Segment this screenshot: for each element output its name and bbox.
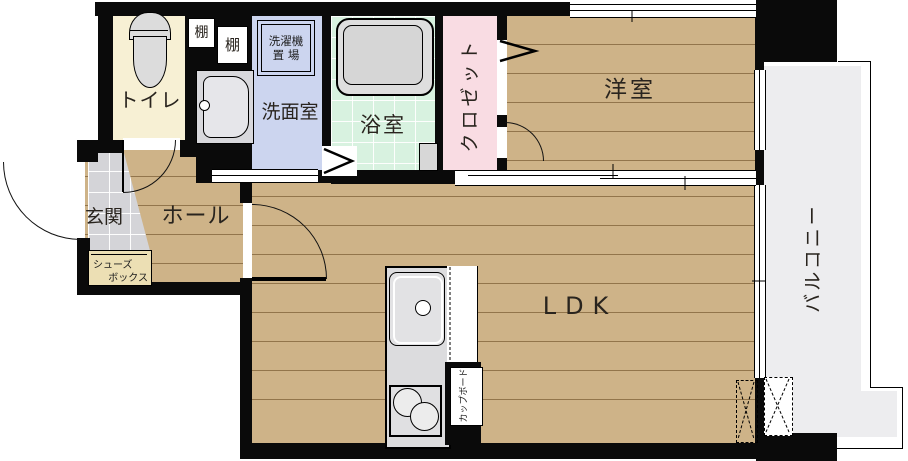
shoes-box-label-line2: ボックス [108,269,148,284]
toilet-label: トイレ [113,88,187,112]
ldk-pipe-space [736,380,758,443]
balcony-outline-step [870,387,903,388]
sliding-door-mid-line [212,175,318,176]
wall-entrance-top-left [77,140,98,162]
cupboard-label: カップボード [460,367,471,425]
window-mid-line [570,10,756,11]
shelf-1-label: 棚 [195,26,209,40]
kitchen-counter-return [447,266,478,362]
wall-top-right-block [756,0,837,62]
washbasin-faucet [199,100,210,111]
wall-ldk-left [240,278,252,443]
western-room-top-window [570,4,756,18]
shelf-box-1: 棚 [188,18,215,48]
ldk-floor [252,183,756,443]
wall-hall-ldk-top [240,183,252,203]
closet-label: クロゼット [459,13,481,177]
wall-right-upper [755,16,764,70]
entrance-door-arc [3,162,81,240]
western-room-label: 洋室 [560,76,700,104]
wall-closet-right-top [497,15,507,40]
window-mid-line [759,185,760,378]
balcony-outline-bottom [833,448,903,449]
entrance-label: 玄関 [83,206,125,228]
bathroom-label: 浴室 [340,112,426,138]
sliding-door-panel-line-2 [600,178,756,179]
balcony-floor-extension [861,391,897,437]
balcony-hatch [764,377,793,436]
shelf-2-label: 棚 [225,38,240,53]
washroom-sliding-door [212,169,318,183]
washroom-label: 洗面室 [250,100,330,124]
washing-machine-label-line1: 洗濯機 [269,34,304,48]
stove-burner-2 [410,402,439,431]
ldk-balcony-window [754,185,766,378]
balcony-outline-right-upper [870,61,871,388]
balcony-outline-top [838,61,871,62]
sliding-door-panel-line-1 [468,175,618,176]
wall-toilet-bottom-left [98,140,123,153]
wall-top [95,2,570,16]
western-room-balcony-window [754,70,766,150]
washing-machine-area-box: 洗濯機 置 場 [257,20,315,76]
toilet-door-leaf [122,140,124,192]
toilet-tank-lid-line [130,30,168,31]
hall-ldk-door-opening [243,203,252,278]
wall-bottom-right-block [756,433,837,461]
western-room-ldk-sliding-door [455,170,756,186]
shelf-box-2: 棚 [217,26,248,64]
hall-label: ホール [150,204,242,230]
wall-bottom [240,443,756,459]
shoes-box-top-line [91,254,147,255]
bath-counter [419,143,438,171]
balcony-outline-right-lower [902,387,903,449]
wall-left [98,2,113,152]
washbasin-bowl [203,76,249,138]
ldk-label: LDK [520,292,640,320]
hall-ldk-door-leaf [252,277,326,281]
floorplan: 棚 棚 洗濯機 置 場 カップボード シューズ ボックス [0,0,908,461]
shoes-box: シューズ ボックス [88,250,152,286]
kitchen-faucet [415,300,431,316]
washing-machine-area-inner: 洗濯機 置 場 [261,24,311,72]
wall-right-mid [755,150,764,185]
balcony-label: バルコニー [802,176,824,340]
window-mid-line [759,70,760,150]
wall-bath-left [322,16,331,148]
wall-toilet-bottom-right [180,140,196,157]
washing-machine-label-line2: 置 場 [273,48,300,62]
bathtub-inner [343,25,423,85]
wall-bath-bottom [331,170,468,184]
